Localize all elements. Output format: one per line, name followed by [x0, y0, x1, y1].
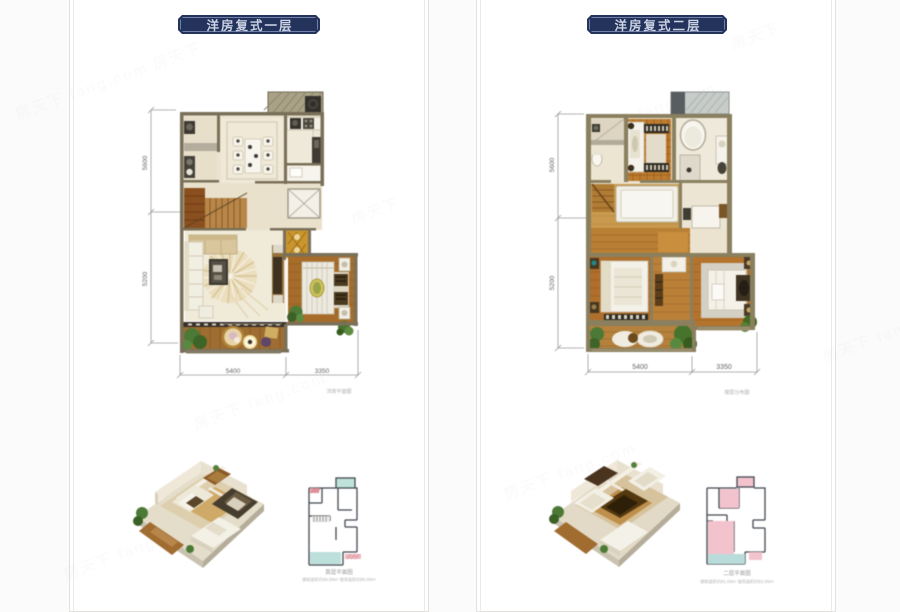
svg-text:5200: 5200 [142, 271, 149, 286]
svg-text:首层平面图: 首层平面图 [325, 568, 353, 576]
svg-text:二层平面图: 二层平面图 [723, 569, 751, 577]
svg-text:建筑面积约91.00m² 使用面积约82.00m²: 建筑面积约91.00m² 使用面积约82.00m² [700, 578, 774, 585]
svg-text:3350: 3350 [716, 364, 732, 371]
svg-text:5400: 5400 [226, 368, 241, 375]
svg-text:3350: 3350 [315, 368, 330, 375]
svg-text:建筑面积约89.00m² 使用面积约80.00m²: 建筑面积约89.00m² 使用面积约80.00m² [302, 576, 376, 583]
svg-text:5400: 5400 [632, 364, 648, 371]
svg-text:5600: 5600 [142, 155, 149, 170]
svg-text:楼层分布图: 楼层分布图 [724, 389, 749, 396]
svg-text:洋房平面图: 洋房平面图 [326, 388, 351, 395]
svg-text:5600: 5600 [549, 157, 556, 172]
svg-text:5200: 5200 [549, 275, 556, 290]
